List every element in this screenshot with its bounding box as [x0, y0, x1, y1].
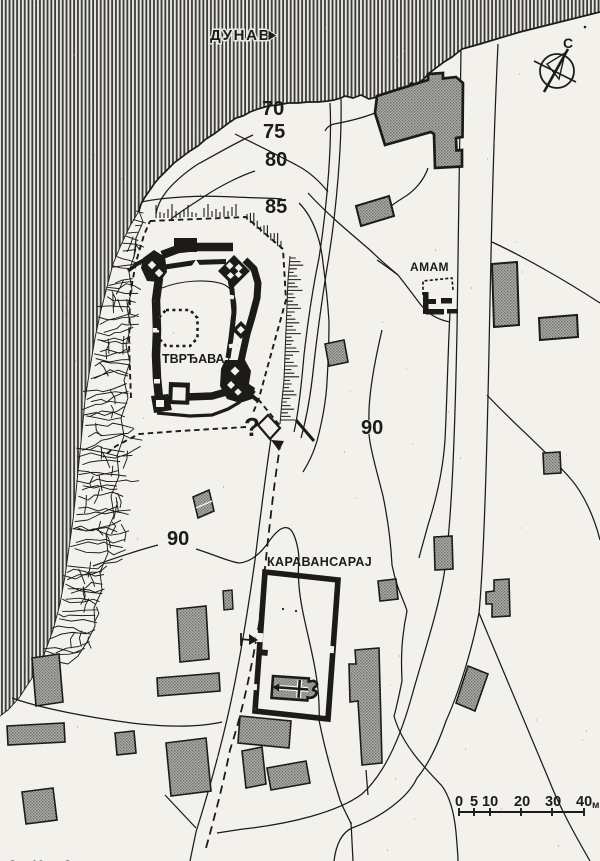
svg-text:С: С [563, 35, 573, 51]
svg-text:40: 40 [576, 794, 592, 810]
svg-text:м: м [592, 800, 599, 811]
svg-text:10: 10 [482, 794, 498, 810]
svg-text:АМАМ: АМАМ [410, 260, 449, 274]
svg-text:0: 0 [455, 794, 463, 810]
svg-text:70: 70 [262, 98, 284, 120]
svg-text:КАРАВАНСАРАЈ: КАРАВАНСАРАЈ [267, 555, 372, 569]
svg-text:ТВРЂАВА: ТВРЂАВА [162, 352, 225, 366]
svg-text:5: 5 [470, 794, 478, 810]
svg-text:90: 90 [361, 417, 383, 439]
svg-text:75: 75 [263, 121, 285, 143]
svg-text:20: 20 [514, 794, 530, 810]
svg-text:ДУНАВ: ДУНАВ [210, 27, 271, 44]
svg-text:90: 90 [167, 528, 189, 550]
svg-text:85: 85 [265, 196, 287, 218]
svg-text:?: ? [244, 412, 260, 442]
svg-text:30: 30 [545, 794, 561, 810]
svg-text:80: 80 [265, 149, 287, 171]
